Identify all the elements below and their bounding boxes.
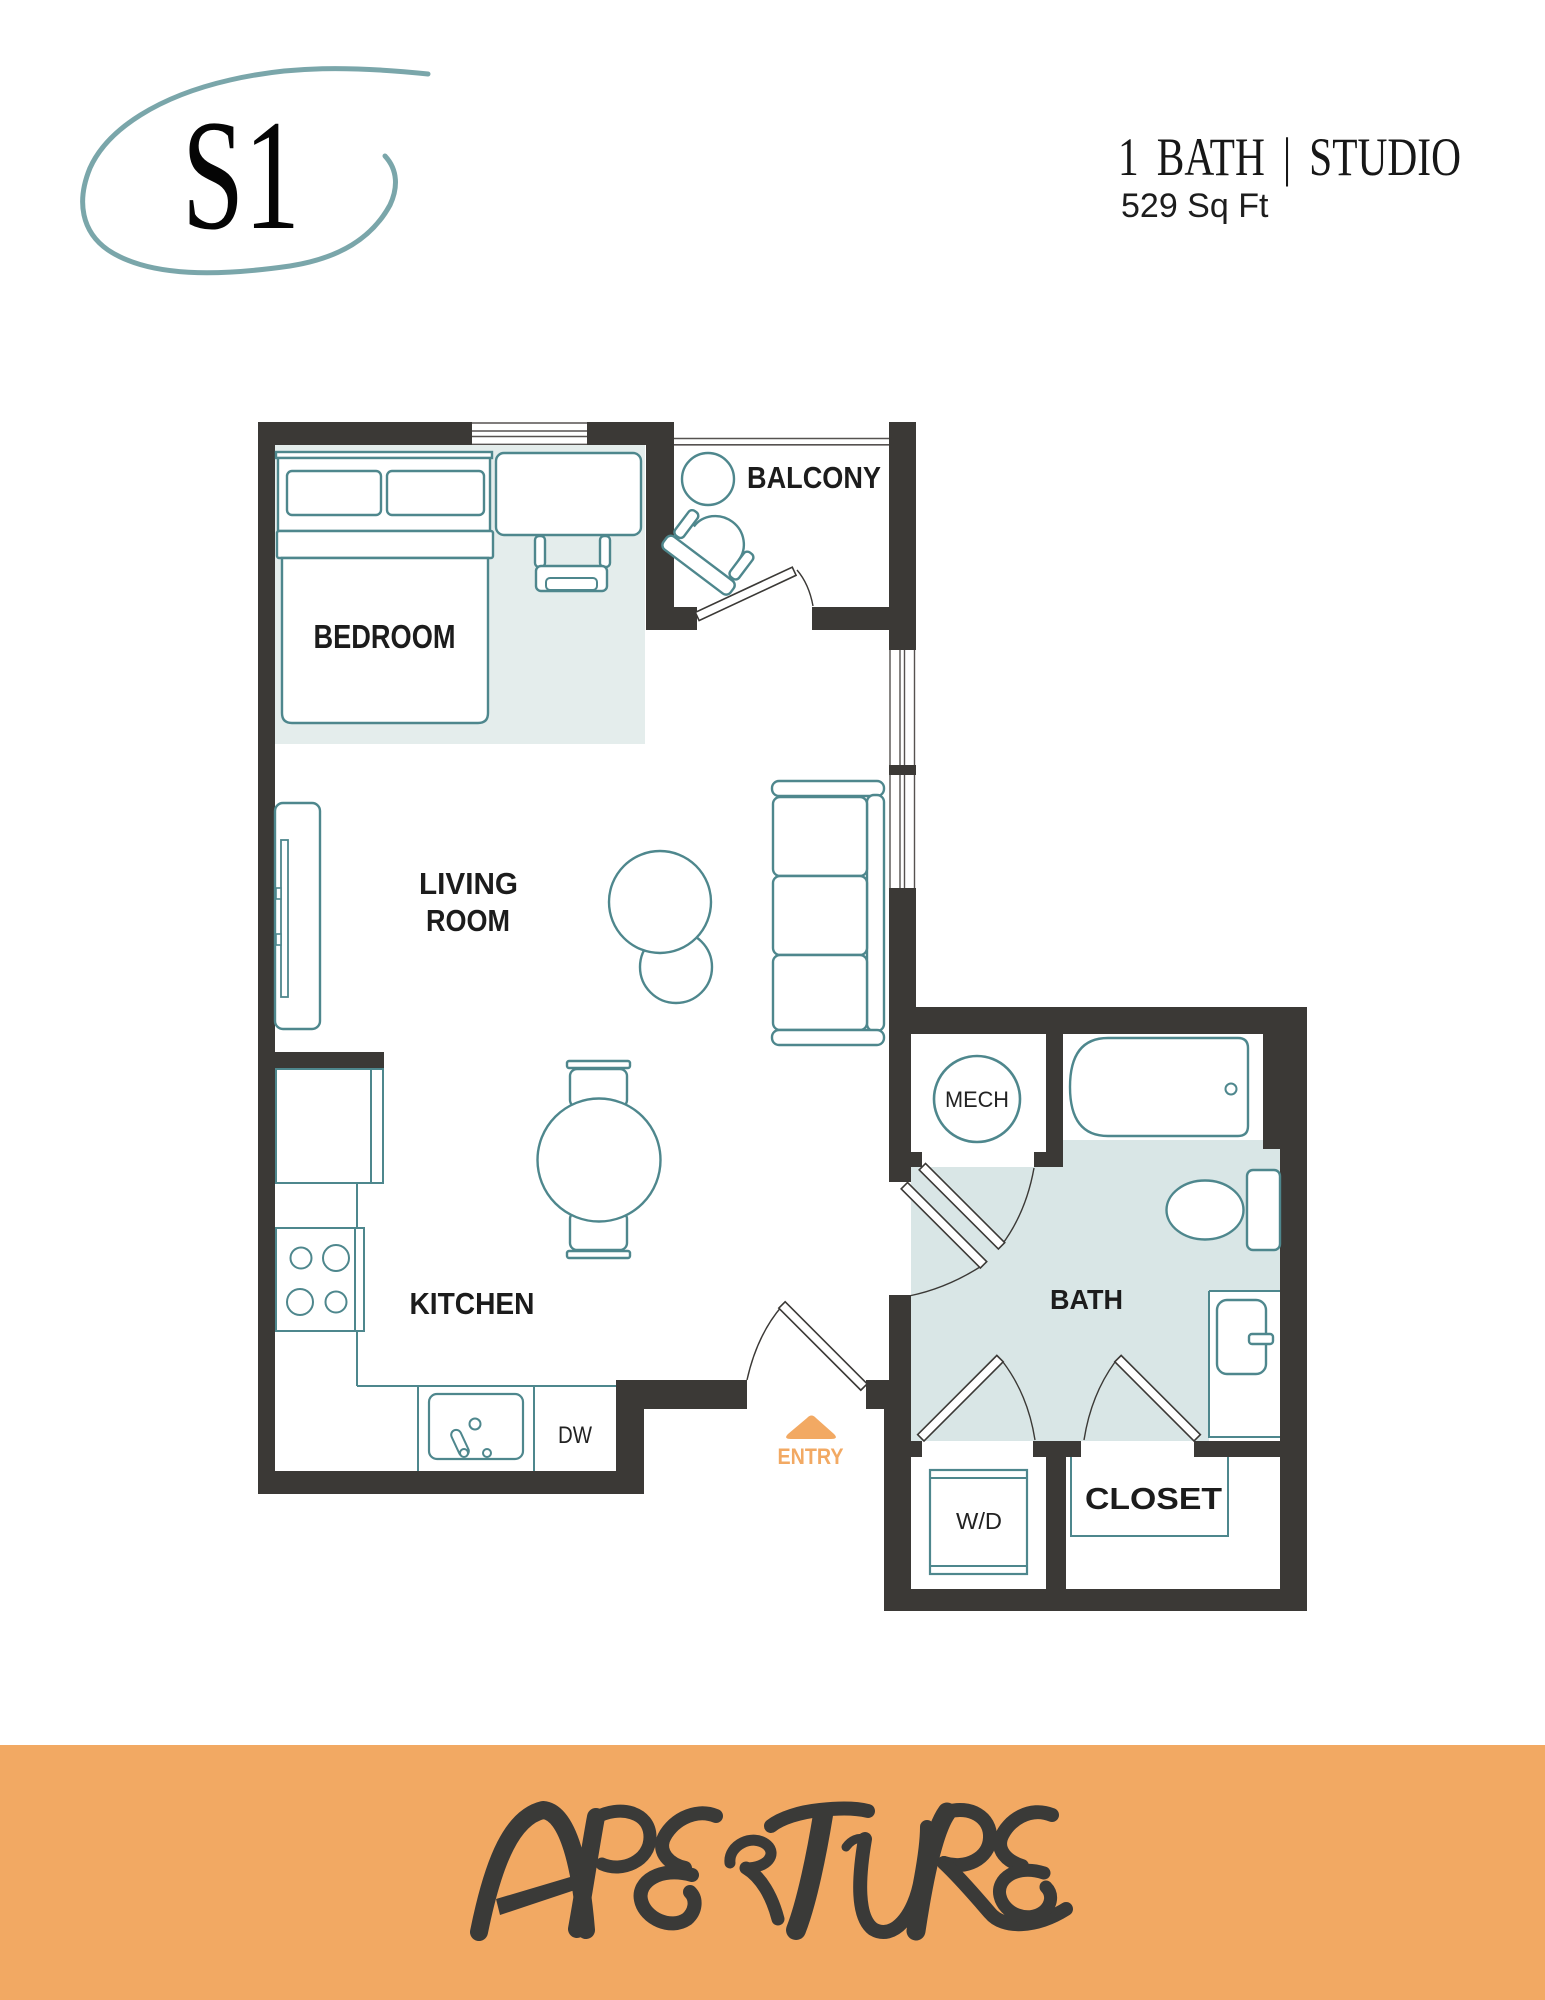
svg-text:529 Sq Ft: 529 Sq Ft [1121,187,1269,225]
svg-text:BALCONY: BALCONY [747,460,881,495]
svg-text:ROOM: ROOM [426,903,510,938]
svg-text:KITCHEN: KITCHEN [410,1286,535,1321]
svg-text:S1: S1 [182,88,300,263]
svg-text:DW: DW [558,1422,592,1449]
svg-text:BEDROOM: BEDROOM [314,618,456,655]
svg-text:CLOSET: CLOSET [1085,1481,1222,1516]
svg-text:BATH: BATH [1050,1284,1123,1315]
svg-text:1 BATH | STUDIO: 1 BATH | STUDIO [1118,127,1461,187]
svg-text:MECH: MECH [945,1087,1009,1112]
svg-text:W/D: W/D [956,1508,1002,1534]
svg-text:LIVING: LIVING [419,866,518,901]
svg-text:ENTRY: ENTRY [778,1444,844,1469]
